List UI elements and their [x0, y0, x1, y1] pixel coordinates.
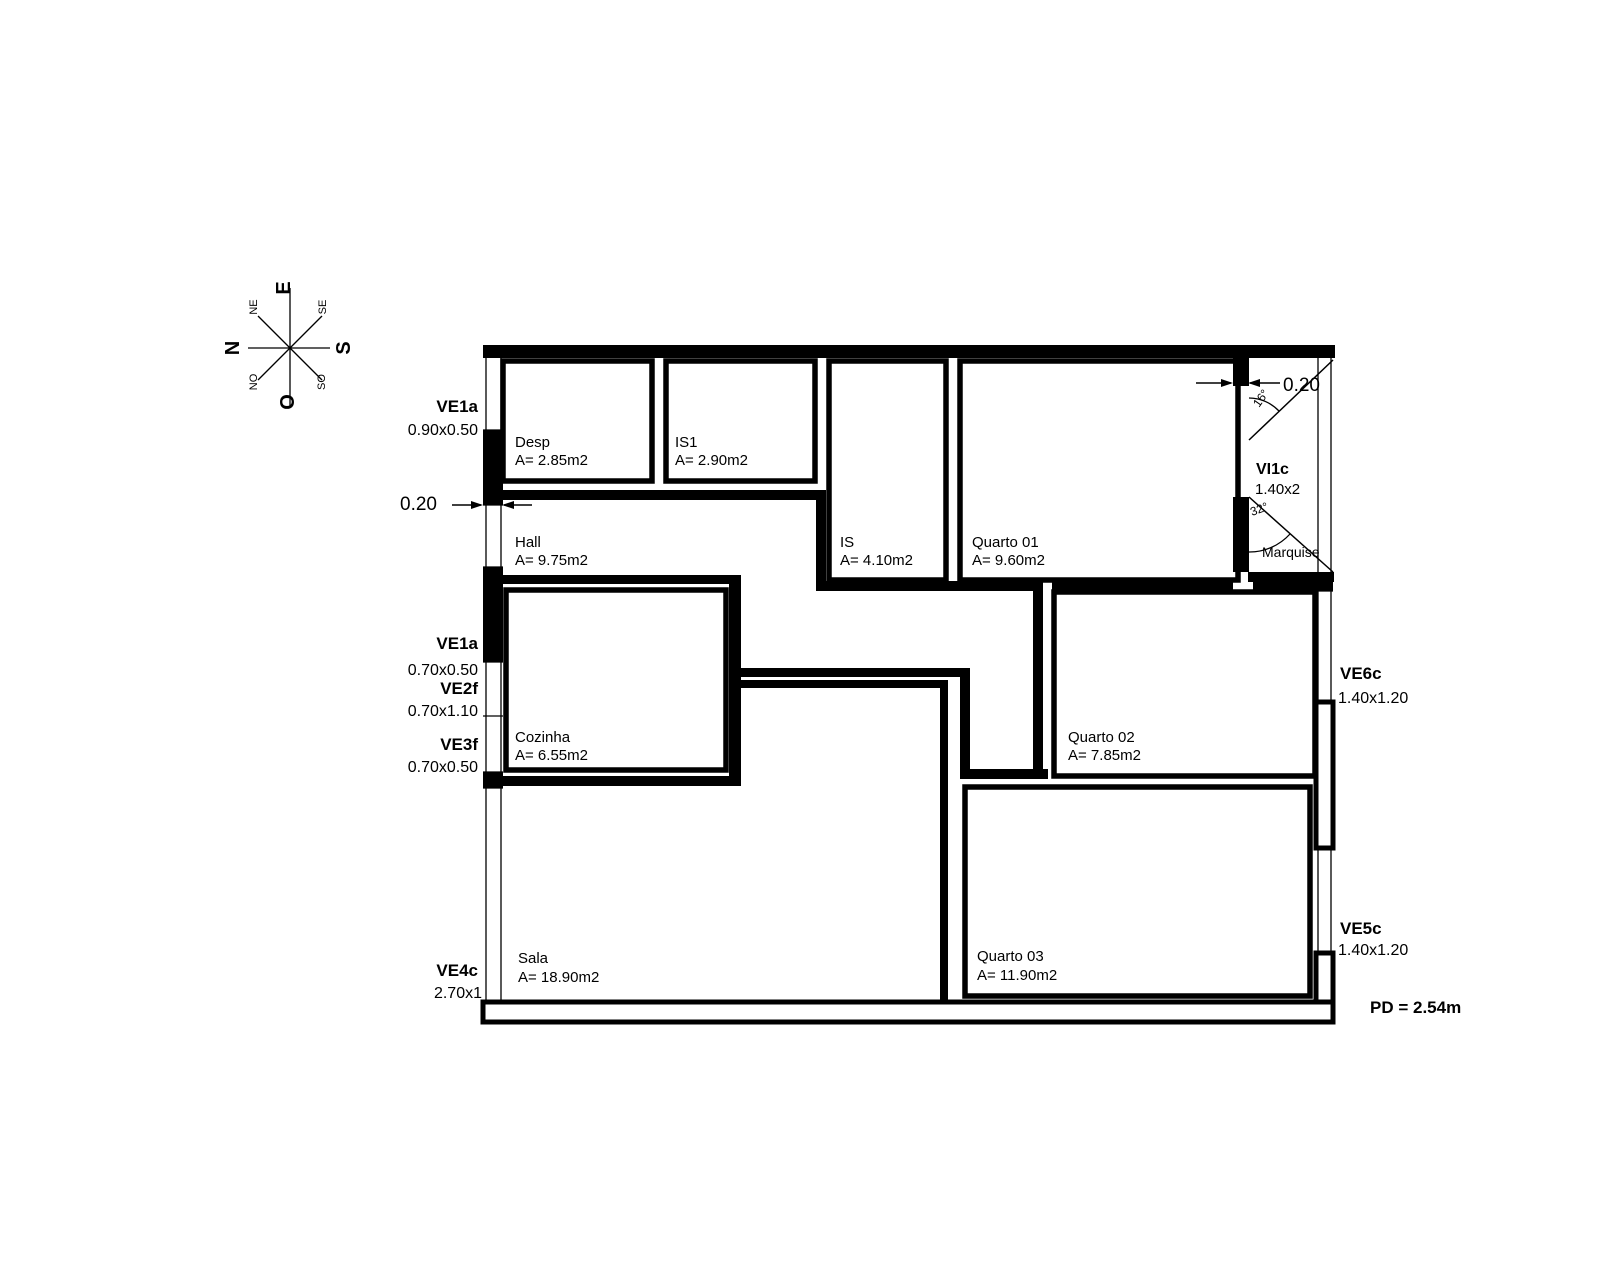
left-wall-segment — [483, 430, 503, 505]
window-code: VE1a — [436, 397, 478, 416]
window-size: 0.70x1.10 — [408, 703, 478, 720]
right-wall-segment — [1316, 702, 1333, 848]
hall-cozinha-wall — [483, 575, 741, 584]
closet-left-wall — [960, 668, 970, 778]
sala-right-border — [940, 680, 948, 1002]
closet-right-wall — [1033, 581, 1043, 779]
room-name: Quarto 03 — [977, 948, 1044, 965]
room-boxes — [503, 361, 1315, 996]
compass-e-label: E — [273, 281, 295, 294]
compass-n-label: N — [222, 341, 244, 355]
room-name: Quarto 01 — [972, 534, 1039, 551]
window-size: 0.70x0.50 — [408, 759, 478, 776]
compass-ne-label: NE — [248, 299, 260, 314]
room-area: A= 9.75m2 — [515, 552, 588, 569]
window-size: 1.40x1.20 — [1338, 690, 1408, 707]
window-code: VE2f — [440, 679, 478, 698]
room-area: A= 2.90m2 — [675, 452, 748, 469]
right-wall-corner — [1316, 953, 1333, 1002]
arrowhead-icon — [1221, 379, 1233, 387]
top-wall — [483, 345, 1335, 358]
room-name: Desp — [515, 434, 550, 451]
room-name: Sala — [518, 950, 549, 967]
below-cozinha-wall — [483, 776, 741, 786]
compass-o-label: O — [277, 394, 299, 410]
room-name: Quarto 02 — [1068, 729, 1135, 746]
sala-top-border — [739, 680, 948, 688]
room-area: A= 2.85m2 — [515, 452, 588, 469]
angle-label-lower: 32° — [1248, 499, 1270, 518]
room-area: A= 7.85m2 — [1068, 747, 1141, 764]
wall-thickness-label: 0.20 — [1283, 375, 1320, 396]
room-area: A= 6.55m2 — [515, 747, 588, 764]
compass-s-label: S — [333, 341, 355, 354]
arrowhead-icon — [502, 501, 514, 509]
compass-so-label: SO — [316, 374, 328, 390]
window-labels-left: VE1a 0.90x0.50 VE1a 0.70x0.50 VE2f 0.70x… — [408, 397, 482, 1002]
window-size: 1.40x2 — [1255, 481, 1300, 498]
window-size: 0.70x0.50 — [408, 662, 478, 679]
walls — [483, 345, 1335, 1002]
room-name: IS — [840, 534, 854, 551]
ceiling-height-note: PD = 2.54m — [1370, 998, 1461, 1017]
bottom-wall — [483, 1002, 1333, 1022]
room-name: Cozinha — [515, 729, 571, 746]
window-size: 1.40x1.20 — [1338, 942, 1408, 959]
room-area: A= 18.90m2 — [518, 969, 599, 986]
window-code: VE6c — [1340, 664, 1382, 683]
compass-no-label: NO — [248, 373, 260, 390]
room-labels: Desp A= 2.85m2 IS1 A= 2.90m2 Hall A= 9.7… — [515, 434, 1320, 986]
window-code: VE4c — [436, 961, 478, 980]
angle-label-upper: 16° — [1250, 387, 1272, 410]
room-area: A= 11.90m2 — [977, 967, 1057, 984]
room-area: A= 9.60m2 — [972, 552, 1045, 569]
marquise-bottom-wall — [1248, 572, 1334, 582]
hollow-walls — [483, 702, 1333, 1022]
arrowhead-icon — [1248, 379, 1260, 387]
arrowhead-icon — [471, 501, 483, 509]
room-name: Marquise — [1262, 544, 1320, 560]
is-divider-wall — [816, 490, 826, 591]
compass-rose: E N S O NE SE NO SO — [222, 281, 355, 409]
window-code: VE1a — [436, 634, 478, 653]
window-code: VE3f — [440, 735, 478, 754]
room-name: IS1 — [675, 434, 698, 451]
compass-se-label: SE — [317, 300, 329, 315]
window-size: 2.70x1 — [434, 985, 482, 1002]
hall-top-wall — [502, 490, 818, 500]
window-code: VI1c — [1256, 461, 1289, 478]
room-area: A= 4.10m2 — [840, 552, 913, 569]
wall-thickness-label: 0.20 — [400, 494, 437, 515]
window-size: 0.90x0.50 — [408, 422, 478, 439]
window-code: VE5c — [1340, 919, 1382, 938]
floor-plan: 16° 32° 0.20 0.20 E N S O NE SE NO SO De… — [0, 0, 1600, 1280]
sala-corridor-wall — [738, 668, 962, 677]
room-name: Hall — [515, 534, 541, 551]
